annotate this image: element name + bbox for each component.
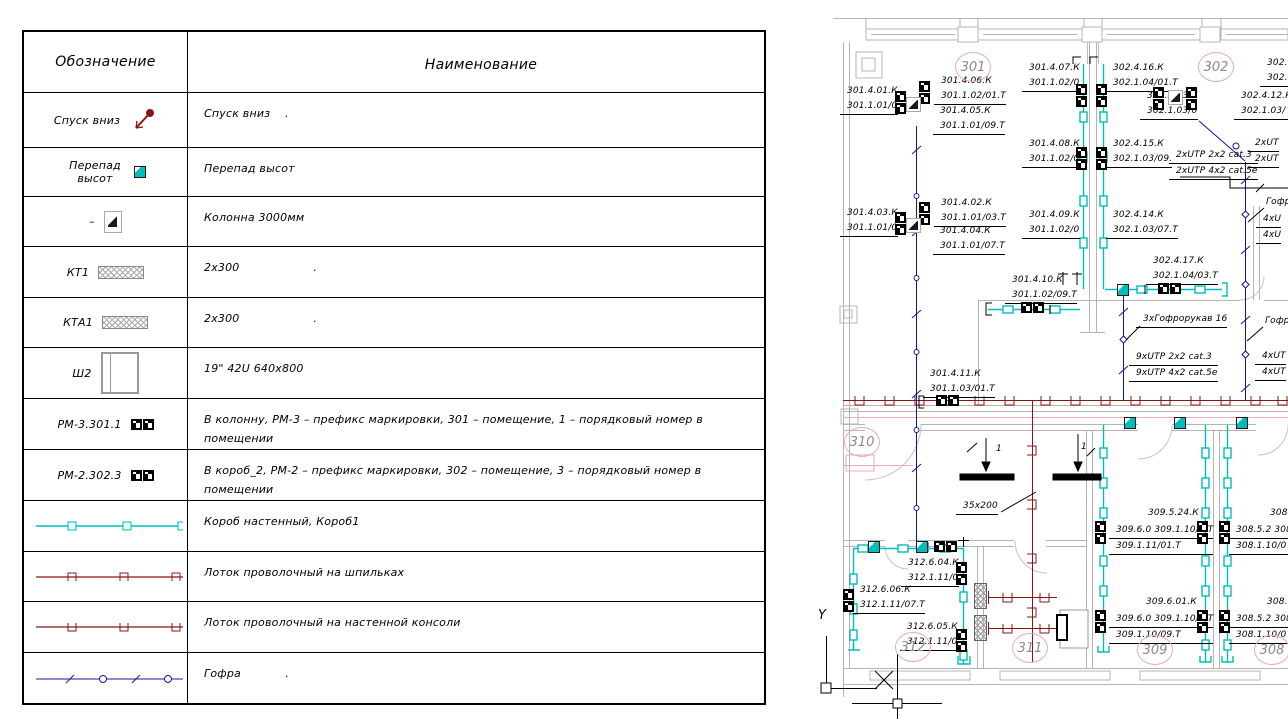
room-number-bubble: 309 bbox=[1137, 635, 1173, 665]
cable-label: 301.4.01.К301.1.01/0 bbox=[847, 84, 898, 115]
cable-label: 302.302. bbox=[1267, 56, 1288, 87]
socket-pair-icon bbox=[1076, 147, 1087, 170]
cable-label: 312.6.06.К312.1.11/07.Т bbox=[860, 583, 925, 614]
cable-label: 301.4.11.К301.1.03/01.Т bbox=[930, 367, 995, 398]
room-number-bubble: 302 bbox=[1198, 52, 1234, 82]
socket-pair-icon bbox=[1219, 610, 1230, 633]
socket-pair-icon bbox=[1076, 84, 1087, 107]
cable-label: 301.4.10.К301.1.02/09.Т bbox=[1012, 273, 1077, 304]
cad-canvas: Обозначение Наименование Спуск вниз Спус… bbox=[0, 0, 1288, 719]
room-number-bubble: 308 bbox=[1254, 635, 1288, 665]
level-change-icon bbox=[1117, 284, 1129, 296]
cable-label: 301.4.08.К301.1.02/0 bbox=[1029, 137, 1080, 168]
socket-pair-icon bbox=[1158, 283, 1181, 294]
room-number-bubble: 311 bbox=[1012, 633, 1048, 663]
socket-pair-icon bbox=[934, 541, 957, 552]
cable-label: 9хUTP 2х2 cat.39хUTP 4х2 cat.5е bbox=[1136, 350, 1218, 382]
cable-label: 302.4.16.К302.1.04/01.Т bbox=[1113, 61, 1178, 92]
socket-pair-icon bbox=[936, 395, 959, 406]
cable-label: 1 bbox=[1081, 440, 1087, 455]
cable-label: 308 bbox=[1270, 506, 1288, 521]
cable-label: 1 bbox=[996, 442, 1002, 457]
socket-pair-icon bbox=[1197, 610, 1208, 633]
cable-label: 301.4.09.К301.1.02/0 bbox=[1029, 208, 1080, 239]
socket-pair-icon bbox=[843, 589, 854, 612]
cable-label: 301.4.02.К301.1.01/03.Т bbox=[941, 196, 1006, 227]
cable-label: Y bbox=[818, 608, 826, 624]
room-number-bubble: 312 bbox=[895, 632, 931, 662]
cable-label: 3хГофрорукав 16 bbox=[1143, 312, 1227, 328]
socket-pair-icon bbox=[1095, 521, 1106, 544]
cable-label: 309.6.01.К bbox=[1146, 595, 1197, 610]
socket-pair-icon bbox=[1021, 302, 1044, 313]
cable-label: 309.5.24.К bbox=[1148, 506, 1199, 521]
level-change-icon bbox=[1174, 417, 1186, 429]
room-number-bubble: 310 bbox=[844, 427, 880, 457]
socket-pair-icon bbox=[956, 629, 967, 652]
level-change-icon bbox=[916, 541, 928, 553]
socket-pair-icon bbox=[956, 562, 967, 585]
socket-pair-icon bbox=[895, 91, 906, 114]
level-change-icon bbox=[1124, 417, 1136, 429]
cable-label: 2хUT2хUT bbox=[1255, 136, 1279, 168]
floor-plan-overlay: 301.4.01.К301.1.01/0301.4.06.К301.1.02/0… bbox=[0, 0, 1288, 719]
cable-label: 4хUТ4хUТ bbox=[1262, 349, 1286, 381]
room-number-bubble: 301 bbox=[955, 52, 991, 82]
cable-label: 302.4.15.К302.1.03/09. bbox=[1113, 137, 1172, 168]
cable-label: Гофр bbox=[1266, 195, 1288, 210]
column-symbol-icon bbox=[1168, 90, 1183, 105]
cable-label: 4хU4хU bbox=[1263, 212, 1281, 244]
socket-pair-icon bbox=[895, 212, 906, 235]
level-change-icon bbox=[1236, 417, 1248, 429]
riser-box-icon bbox=[1056, 614, 1068, 641]
cable-label: 302.4.17.К302.1.04/03.Т bbox=[1153, 254, 1218, 285]
cable-label: 308. bbox=[1267, 595, 1288, 610]
cable-label: 301.4.03.К301.1.01/0 bbox=[847, 206, 898, 237]
socket-pair-icon bbox=[1096, 84, 1107, 107]
cable-label: 302.4.12.К302.1.03/ bbox=[1241, 89, 1288, 120]
cable-label: 301.4.07.К301.1.02/0 bbox=[1029, 61, 1080, 92]
cable-label: 301.4.04.К301.1.01/07.Т bbox=[940, 224, 1005, 255]
column-symbol-icon bbox=[906, 218, 921, 233]
cable-label: 35х200 bbox=[963, 499, 998, 515]
column-symbol-icon bbox=[906, 97, 921, 112]
cable-tray-symbol-icon bbox=[974, 583, 987, 609]
cable-label: 2хUTP 2х2 cat.32хUTP 4х2 cat.5е bbox=[1176, 148, 1258, 180]
socket-pair-icon bbox=[1096, 147, 1107, 170]
cable-label: 301.4.05.К301.1.01/09.Т bbox=[940, 104, 1005, 135]
socket-pair-icon bbox=[1219, 521, 1230, 544]
cable-label: 308.5.2 308308.1.10/0 bbox=[1236, 523, 1288, 555]
socket-pair-icon bbox=[1197, 521, 1208, 544]
socket-pair-icon bbox=[1186, 87, 1197, 110]
socket-pair-icon bbox=[1153, 87, 1164, 110]
cable-tray-symbol-icon bbox=[974, 615, 987, 641]
level-change-icon bbox=[868, 541, 880, 553]
cable-label: Гофр bbox=[1265, 314, 1288, 329]
socket-pair-icon bbox=[1095, 610, 1106, 633]
cable-label: 302.4.14.К302.1.03/07.Т bbox=[1113, 208, 1178, 239]
